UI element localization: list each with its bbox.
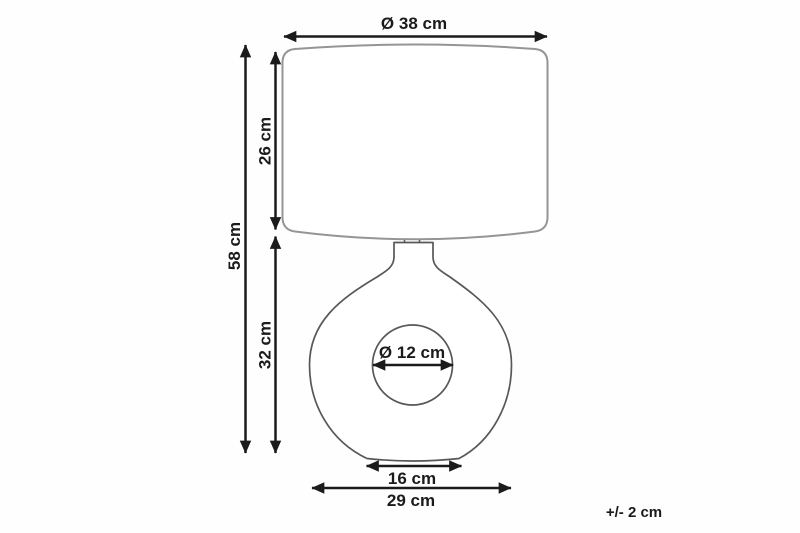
dim-base-bottom-width: 16 cm — [367, 466, 462, 488]
lamp-outline — [283, 45, 548, 462]
dim-hole-diameter-label: Ø 12 cm — [379, 343, 445, 362]
dim-base-bottom-width-label: 16 cm — [388, 469, 436, 488]
dim-shade-height: 26 cm — [256, 52, 276, 230]
dim-shade-diameter: Ø 38 cm — [284, 14, 547, 37]
diagram-canvas: Ø 38 cm 58 cm 26 cm 32 cm Ø 12 cm 16 cm … — [0, 0, 800, 533]
dim-base-width-label: 29 cm — [387, 491, 435, 510]
lamp-dimension-diagram: Ø 38 cm 58 cm 26 cm 32 cm Ø 12 cm 16 cm … — [0, 0, 800, 533]
dim-base-width: 29 cm — [312, 488, 511, 510]
lamp-shade — [283, 45, 548, 240]
dim-shade-height-label: 26 cm — [256, 117, 275, 165]
dim-base-height: 32 cm — [256, 237, 276, 454]
dim-total-height: 58 cm — [225, 45, 246, 453]
dim-hole-diameter: Ø 12 cm — [373, 343, 453, 365]
dim-shade-diameter-label: Ø 38 cm — [381, 14, 447, 33]
dim-total-height-label: 58 cm — [225, 222, 244, 270]
dim-base-height-label: 32 cm — [256, 321, 275, 369]
tolerance-note: +/- 2 cm — [606, 504, 662, 521]
